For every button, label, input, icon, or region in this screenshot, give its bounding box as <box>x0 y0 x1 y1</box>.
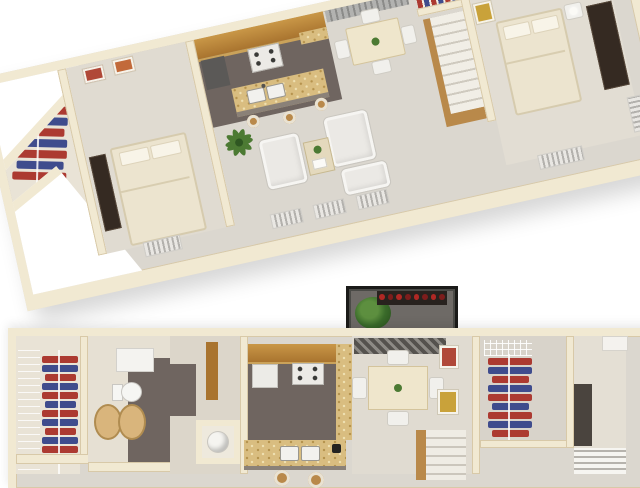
garment <box>488 367 532 374</box>
utility-closet <box>196 420 240 464</box>
dining-table <box>345 17 406 66</box>
garment <box>42 446 78 453</box>
garment <box>488 385 532 392</box>
hall-dark-floor <box>170 364 196 416</box>
duvet-fold <box>121 176 190 193</box>
garment <box>42 410 78 417</box>
coffee-maker <box>332 444 341 453</box>
garment <box>45 401 76 408</box>
wall-dining-closet2 <box>472 336 480 474</box>
sink <box>266 83 287 101</box>
tub-counter <box>116 348 154 372</box>
wood-threshold <box>206 342 218 400</box>
dining-chair <box>400 24 418 46</box>
garment <box>42 437 78 444</box>
garment <box>488 412 532 419</box>
garment <box>45 428 76 435</box>
bar-stool <box>308 472 324 488</box>
stove2 <box>292 363 324 385</box>
flower-row <box>379 294 445 300</box>
toilet-bowl <box>121 382 142 402</box>
pillow <box>150 139 182 159</box>
garment <box>492 430 530 437</box>
open-door <box>574 384 592 446</box>
garment <box>42 383 78 390</box>
closet-bottom-wall <box>16 454 98 464</box>
flower <box>439 294 445 300</box>
garment <box>488 394 532 401</box>
magazine <box>312 157 328 170</box>
pillow <box>531 15 560 35</box>
dining-chair <box>352 377 367 399</box>
flower <box>388 294 394 300</box>
flower <box>431 294 437 300</box>
palm-plant <box>215 119 263 167</box>
garment <box>488 421 532 428</box>
garment <box>488 358 532 365</box>
island2 <box>244 440 346 470</box>
wall-closet-bath <box>80 336 88 458</box>
garment <box>492 376 530 383</box>
floor-plan-top-down-view <box>8 328 640 488</box>
bathroom-bottom-wall <box>88 462 178 472</box>
bar-stool <box>282 110 298 126</box>
floor-plan-3d-view <box>0 0 640 311</box>
linen-shelves <box>574 448 626 474</box>
sink <box>280 446 299 461</box>
flower <box>414 294 420 300</box>
wall-art <box>438 390 458 414</box>
garment <box>42 365 78 372</box>
flower <box>396 294 402 300</box>
table-plant <box>313 145 323 155</box>
counter-strip <box>336 344 352 440</box>
water-heater <box>208 432 228 452</box>
staircase2 <box>416 430 466 480</box>
closet2-garment-rack <box>488 358 532 438</box>
dining-chair <box>387 350 409 365</box>
garment <box>492 403 530 410</box>
refrigerator <box>252 364 278 388</box>
wall-art <box>440 346 458 368</box>
garment <box>45 374 76 381</box>
shelf-nook <box>602 336 628 351</box>
duvet-fold <box>506 50 565 65</box>
closet-rod <box>508 354 510 440</box>
dining-chair <box>371 58 393 76</box>
dining2-table <box>368 366 428 410</box>
flower-planter <box>377 291 447 305</box>
living-window <box>312 198 346 220</box>
bar-stool <box>274 470 290 486</box>
flower <box>405 294 411 300</box>
pillow <box>502 21 531 41</box>
garment <box>42 392 78 399</box>
flower <box>379 294 385 300</box>
closet2-right-wall <box>566 336 574 448</box>
sink <box>301 446 320 461</box>
centerpiece <box>394 384 402 392</box>
garment <box>42 419 78 426</box>
sink <box>246 87 267 105</box>
living-window <box>269 208 303 230</box>
lamp <box>569 6 579 16</box>
pillow <box>119 146 151 166</box>
centerpiece <box>371 37 381 47</box>
armchair <box>257 131 309 191</box>
flower <box>422 294 428 300</box>
vanity-seat <box>118 404 146 440</box>
garment <box>42 356 78 363</box>
dining-chair <box>387 411 409 426</box>
wire-shelf <box>18 344 40 470</box>
